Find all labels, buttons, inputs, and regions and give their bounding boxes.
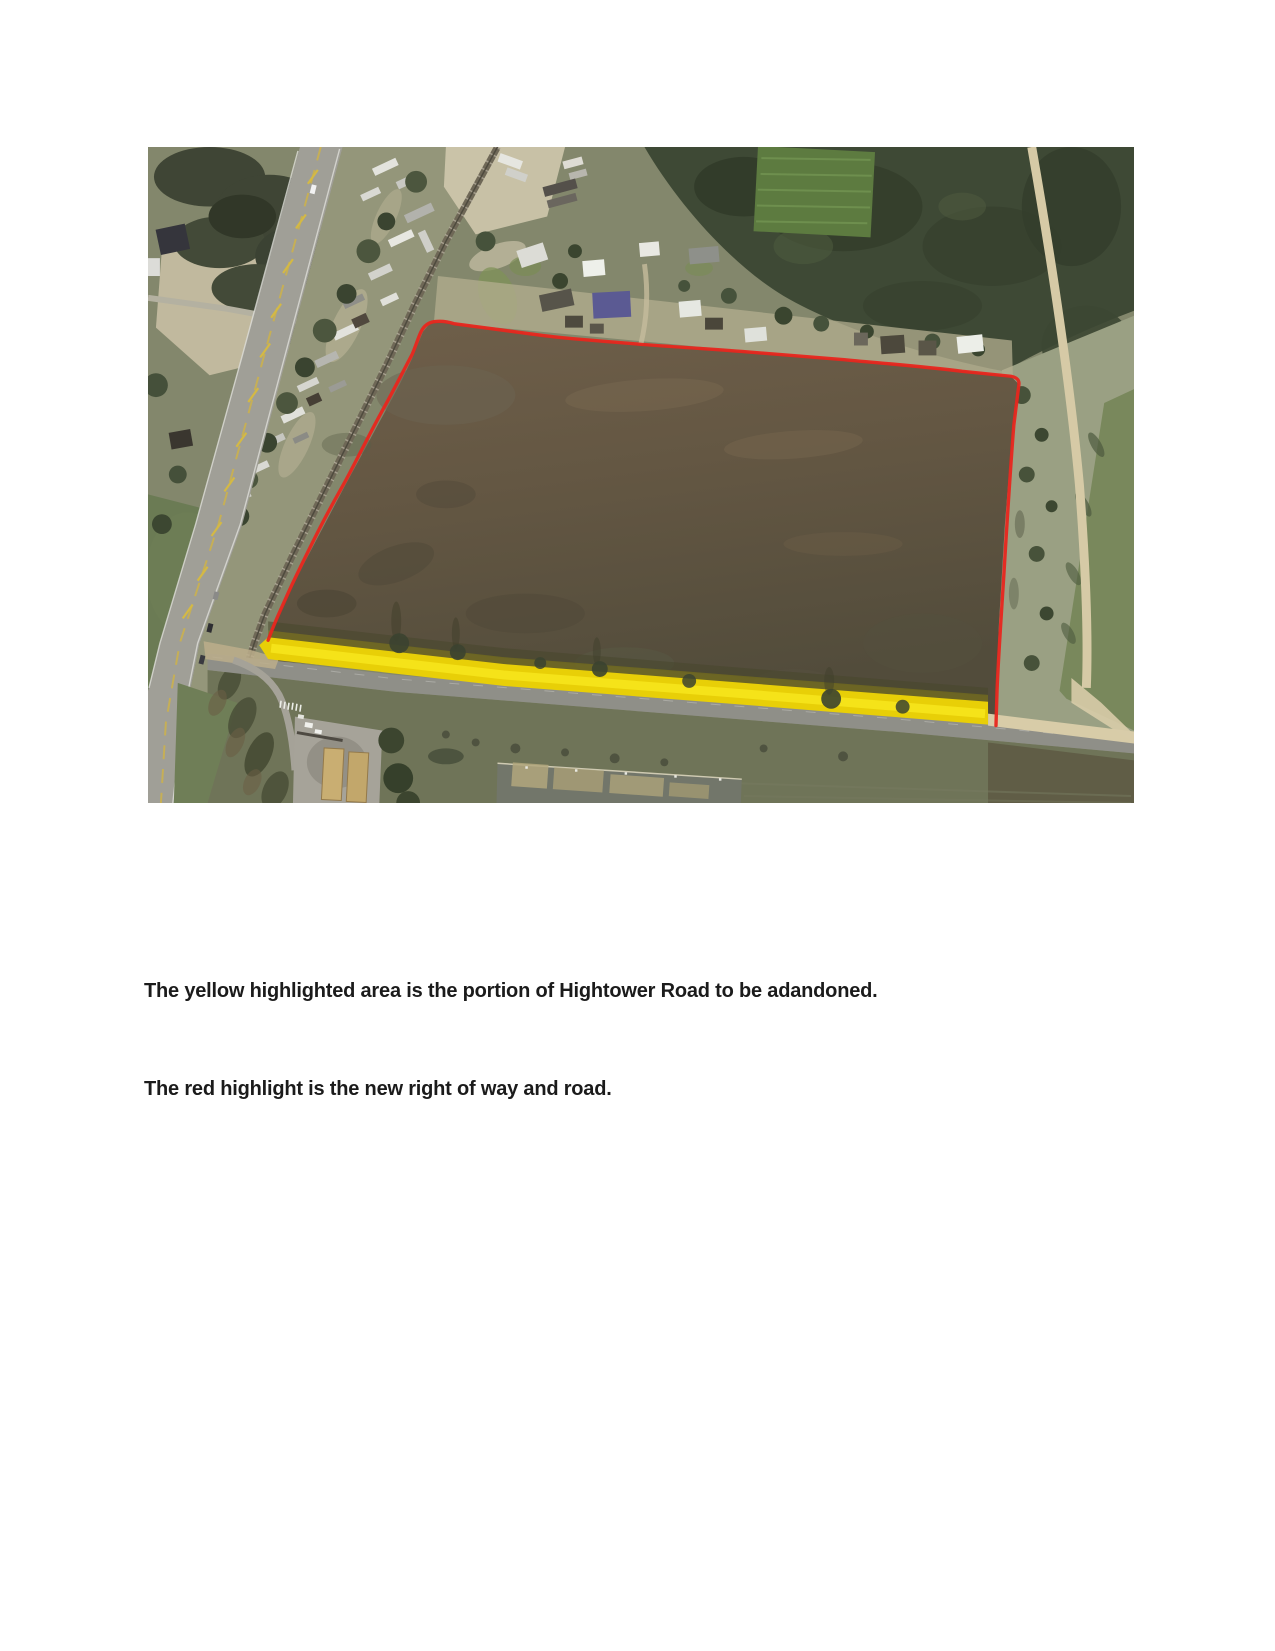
caption-yellow-highlight: The yellow highlighted area is the porti… [144,980,1044,1003]
aerial-photo [148,147,1134,803]
caption-red-highlight: The red highlight is the new right of wa… [144,1078,1044,1101]
document-page: The yellow highlighted area is the porti… [0,0,1275,1651]
crop-patch [754,147,875,237]
aerial-photo-figure [148,147,1134,803]
